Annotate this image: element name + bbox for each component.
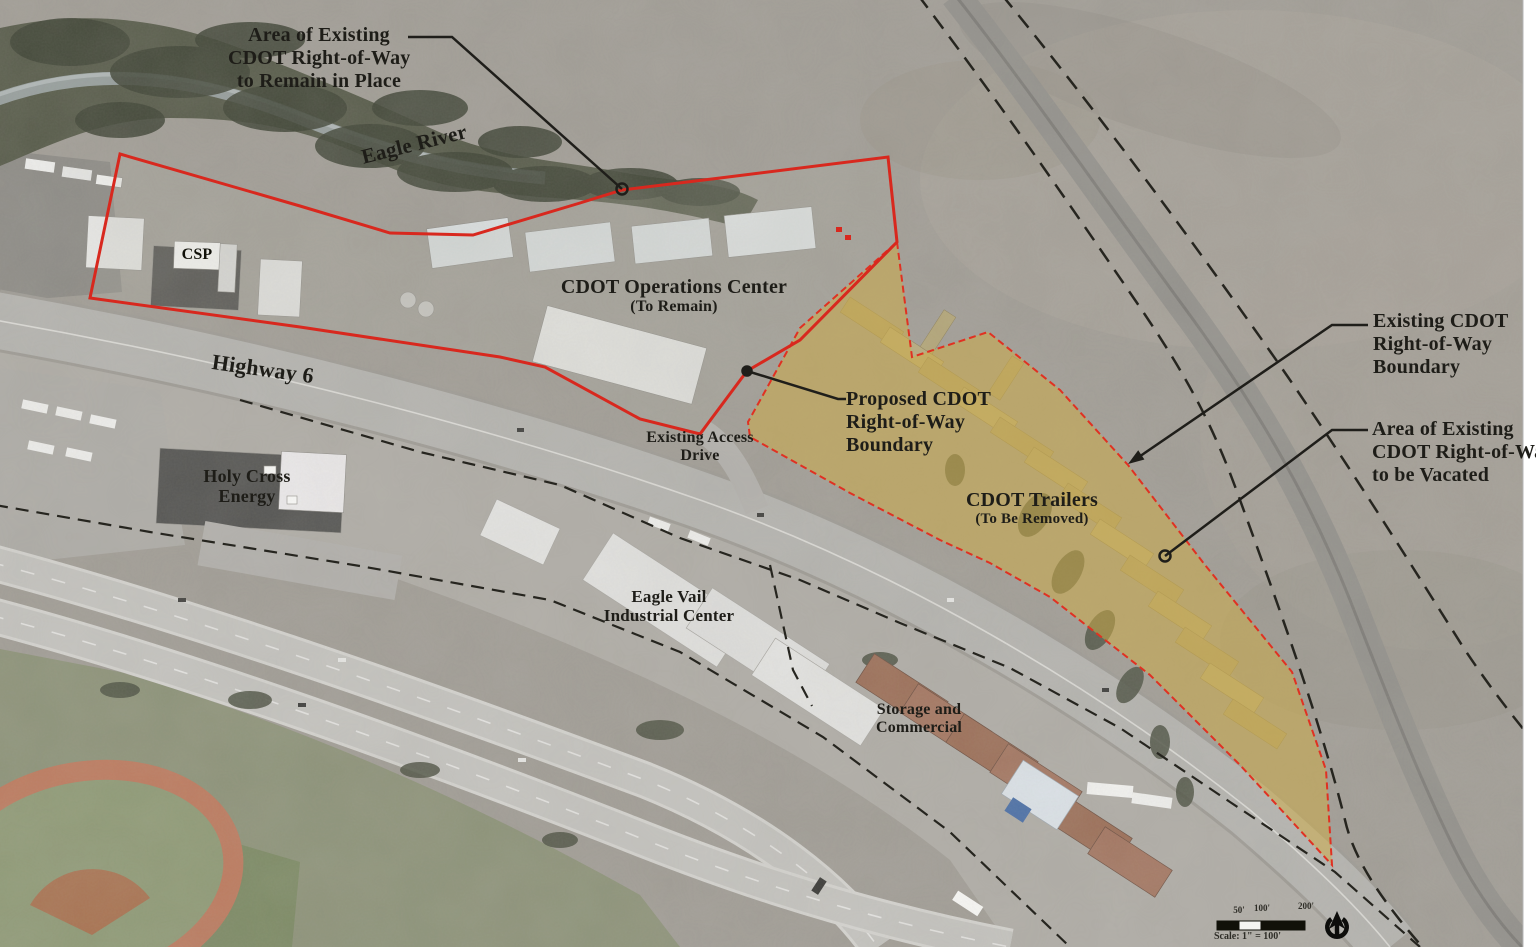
label-trailers: CDOT Trailers (To Be Removed) [966, 489, 1098, 528]
label-holy-cross-line1: Holy Cross [203, 466, 290, 486]
callout-existing-row: Existing CDOT Right-of-Way Boundary [1373, 310, 1508, 379]
label-ops-center-line1: CDOT Operations Center [561, 276, 787, 298]
callout-vacated-line1: Area of Existing [1372, 418, 1536, 441]
callout-existing-row-line3: Boundary [1373, 356, 1508, 379]
label-storage-line2: Commercial [876, 719, 962, 737]
label-eagle-vail-line1: Eagle Vail [604, 587, 734, 606]
label-holy-cross-line2: Energy [203, 486, 290, 506]
callout-proposed-line2: Right-of-Way [846, 411, 991, 434]
label-trailers-line1: CDOT Trailers [966, 489, 1098, 511]
callout-proposed-line3: Boundary [846, 434, 991, 457]
callout-remain-line3: to Remain in Place [228, 70, 410, 93]
label-trailers-line2: (To Be Removed) [966, 511, 1098, 528]
label-eagle-vail: Eagle Vail Industrial Center [604, 587, 734, 625]
callout-existing-row-line2: Right-of-Way [1373, 333, 1508, 356]
label-access-drive-line2: Drive [646, 447, 753, 465]
label-access-drive-line1: Existing Access [646, 429, 753, 447]
callout-existing-row-line1: Existing CDOT [1373, 310, 1508, 333]
label-csp: CSP [174, 246, 220, 264]
label-storage: Storage and Commercial [876, 701, 962, 737]
callout-remain-line2: CDOT Right-of-Way [228, 47, 410, 70]
callout-vacated-line3: to be Vacated [1372, 464, 1536, 487]
scale-tick-100: 100' [1254, 903, 1270, 913]
label-ops-center: CDOT Operations Center (To Remain) [561, 276, 787, 316]
label-ops-center-line2: (To Remain) [561, 298, 787, 316]
callout-vacated: Area of Existing CDOT Right-of-Way to be… [1372, 418, 1536, 487]
callout-proposed-line1: Proposed CDOT [846, 388, 991, 411]
site-plan-map: Area of Existing CDOT Right-of-Way to Re… [0, 0, 1536, 947]
callout-remain-line1: Area of Existing [228, 24, 410, 47]
label-access-drive: Existing Access Drive [646, 429, 753, 465]
scale-tick-50: 50' [1233, 905, 1245, 915]
callout-remain: Area of Existing CDOT Right-of-Way to Re… [228, 24, 410, 93]
scale-bar [1217, 921, 1305, 930]
label-storage-line1: Storage and [876, 701, 962, 719]
label-eagle-vail-line2: Industrial Center [604, 606, 734, 625]
scale-tick-200: 200' [1298, 901, 1314, 911]
callout-vacated-line2: CDOT Right-of-Way [1372, 441, 1536, 464]
callout-proposed: Proposed CDOT Right-of-Way Boundary [846, 388, 991, 457]
leader-proposed-marker [743, 367, 752, 376]
scale-caption: Scale: 1" = 100' [1214, 931, 1281, 942]
label-holy-cross: Holy Cross Energy [203, 466, 290, 506]
